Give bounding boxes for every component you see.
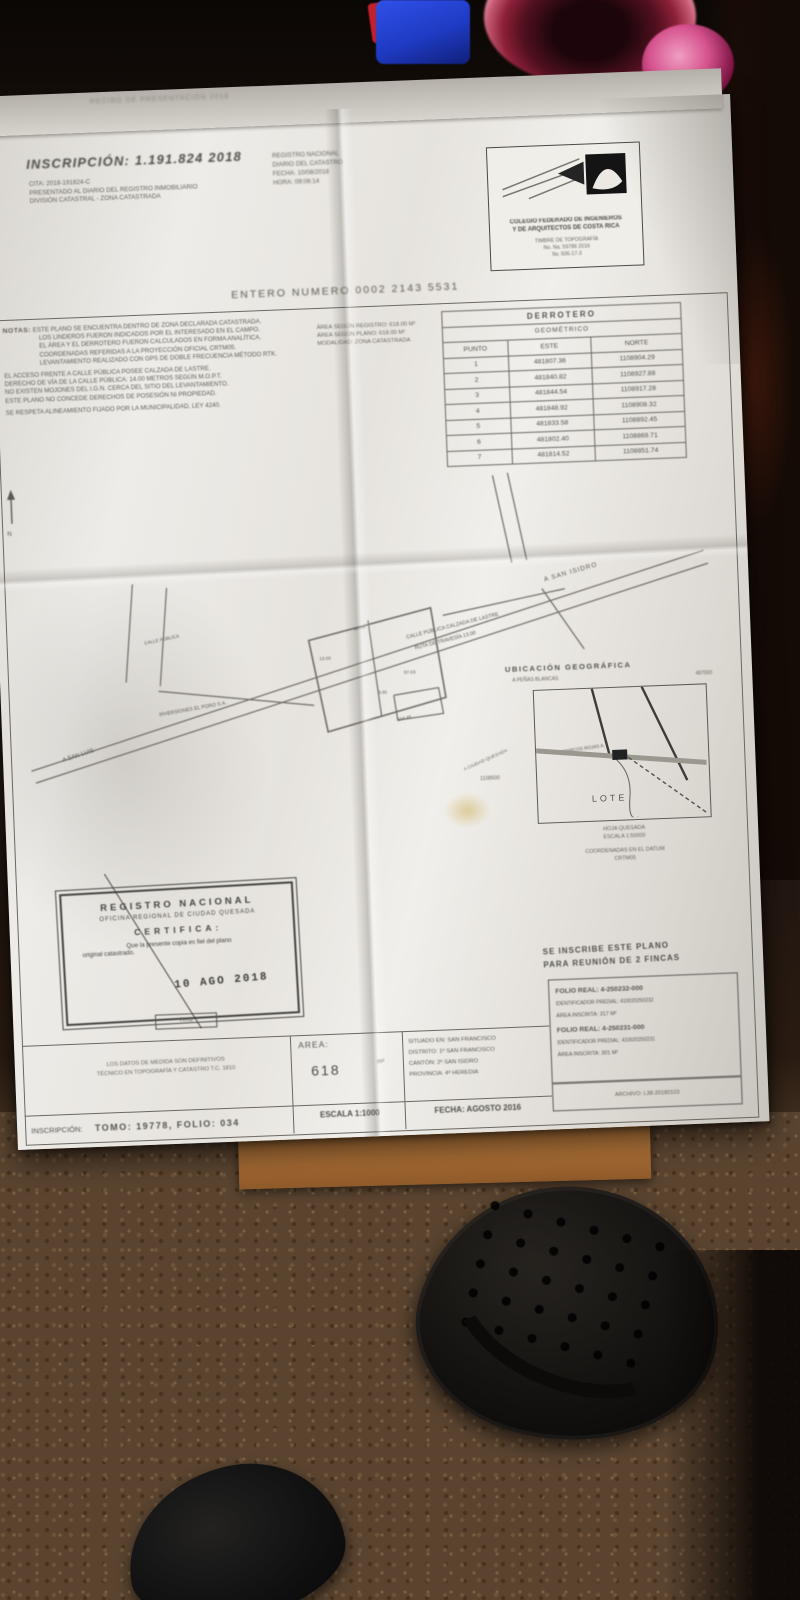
dimension-label: 5.60 xyxy=(379,690,388,695)
back-sheet: RECIBO DE PRESENTACIÓN 2018 xyxy=(0,68,723,136)
dimension-label: 104.45 xyxy=(397,714,412,722)
area-label: AREA: xyxy=(298,1039,329,1050)
faint-header-text: RECIBO DE PRESENTACIÓN 2018 xyxy=(90,93,230,105)
entero-number: ENTERO NUMERO 0002 2143 5531 xyxy=(150,277,540,304)
grid-coordinate: 1108500 xyxy=(480,775,500,782)
north-arrow-icon: N xyxy=(6,490,17,538)
neighbor-label: INVERSIONES EL PORO S.A. xyxy=(159,700,227,718)
derrotero-table: DERROTERO GEOMÉTRICO PUNTO ESTE NORTE 14… xyxy=(441,302,687,467)
paper-document: RECIBO DE PRESENTACIÓN 2018 INSCRIPCIÓN:… xyxy=(0,94,769,1150)
street-label: CALLE PÚBLICA xyxy=(144,632,181,646)
road-label: A SAN ISIDRO xyxy=(543,561,598,583)
logo-small-text: TIMBRE DE TOPOGRAFÍA No. Na. 59786 2016 … xyxy=(494,235,639,262)
stamp-date: 10 AGO 2018 xyxy=(174,971,269,992)
lot-label: LOTE xyxy=(592,792,628,803)
photo-scene: RECIBO DE PRESENTACIÓN 2018 INSCRIPCIÓN:… xyxy=(0,0,800,1600)
location-inset-map: LOTE xyxy=(533,683,712,824)
lot-marker xyxy=(612,749,627,760)
cfia-logo-icon xyxy=(499,151,629,218)
notes-block: NOTAS: ESTE PLANO SE ENCUENTRA DENTRO DE… xyxy=(2,316,307,418)
dimension-label: 13.00 xyxy=(319,656,331,661)
svg-text:N: N xyxy=(7,532,12,538)
signature-box: Firma xyxy=(155,1012,218,1029)
notes-label: NOTAS: xyxy=(2,327,31,335)
road-label: A SAN LUIS xyxy=(62,748,95,764)
header-left-lines: CITA: 2018-191824-C PRESENTADO AL DIARIO… xyxy=(29,172,275,207)
location-cell: SITUADO EN: SAN FRANCISCO DISTRITO: 1º S… xyxy=(408,1032,546,1081)
corner-shadow xyxy=(665,1250,800,1600)
logo-bold-text: COLEGIO FEDERADO DE INGENIEROS Y DE ARQU… xyxy=(494,215,638,236)
registry-stamp: REGISTRO NACIONAL OFICINA REGIONAL DE CI… xyxy=(59,881,300,1026)
tomo-folio: TOMO: 19778, FOLIO: 034 xyxy=(95,1118,240,1134)
surveyor-stamp-box: COLEGIO FEDERADO DE INGENIEROS Y DE ARQU… xyxy=(486,141,645,271)
area-unit: m² xyxy=(377,1058,385,1065)
dimension-label: 64.64 xyxy=(353,624,366,632)
area-value: 618 xyxy=(311,1062,341,1079)
blue-object xyxy=(376,0,470,64)
header-right-lines: REGISTRO NACIONAL DIARIO DEL CATASTRO FE… xyxy=(272,145,433,187)
folio-real-box: FOLIO REAL: 4-250232-000 IDENTIFICADOR P… xyxy=(548,972,742,1083)
dimension-label: 57.03 xyxy=(404,669,416,674)
notes-side-lines: ÁREA SEGÚN REGISTRO: 618.00 M² ÁREA SEGÚ… xyxy=(317,319,438,348)
